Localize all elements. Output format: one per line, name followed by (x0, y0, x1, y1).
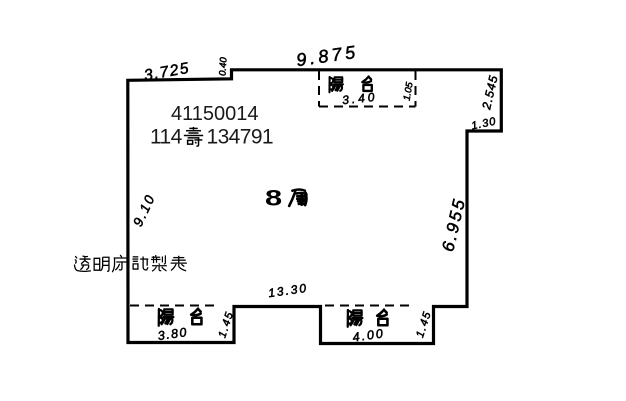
svg-text:134791: 134791 (207, 126, 273, 149)
svg-text:0.40: 0.40 (218, 56, 230, 76)
svg-text:114: 114 (150, 126, 183, 149)
svg-text:8: 8 (265, 186, 282, 211)
svg-text:41150014: 41150014 (171, 103, 259, 125)
